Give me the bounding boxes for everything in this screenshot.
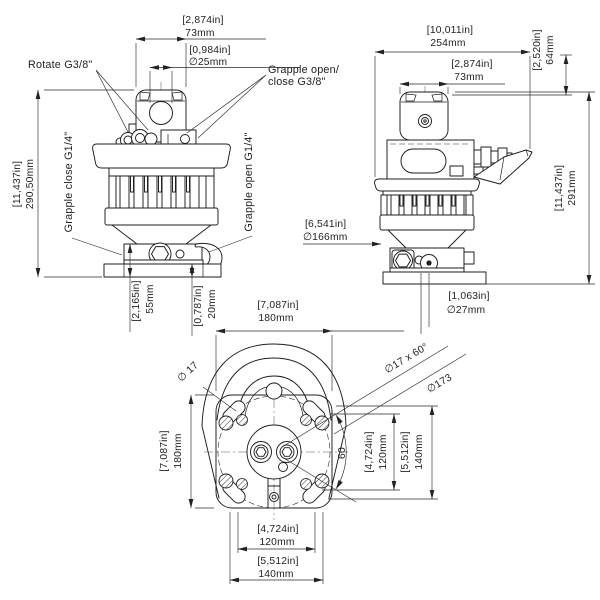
dim-h-inner-mm: 120mm — [259, 537, 294, 548]
side-lower-flange — [380, 215, 474, 230]
dim-v-inner-mm: 120mm — [378, 434, 389, 469]
front-base-plate — [104, 260, 221, 277]
dim-bottom-width-in: [7,087in] — [257, 300, 298, 311]
side-ribs — [381, 195, 473, 215]
grapple-open-close-leader — [187, 75, 266, 138]
front-cone — [112, 225, 211, 244]
side-view: [10,011in] 254mm [2,874in] 73mm [2,520in… — [303, 25, 595, 334]
dim-front-base-mm: 20mm — [207, 289, 218, 318]
dim-front-height-mm: 290,50mm — [25, 159, 36, 209]
front-top-flange — [93, 144, 231, 168]
label-grapple-open-close-1: Grapple open/ — [268, 64, 339, 76]
side-base-plate — [383, 268, 486, 284]
grapple-close-leader — [72, 238, 122, 255]
dim-slot-dia: ∅ 17 — [176, 360, 201, 385]
dim-front-pinhole-in: [0,984in] — [189, 45, 230, 56]
dim-bottom-width-mm: 180mm — [258, 313, 293, 324]
dim-front-width-in: [2,874in] — [182, 15, 223, 26]
dim-front-bracket-in: [2,165in] — [131, 280, 142, 321]
dim-bottom-height-mm: 180mm — [173, 433, 184, 468]
dim-v-outer-in: [5,512in] — [400, 431, 411, 472]
front-part-outline — [93, 82, 231, 277]
dim-side-housing-in: [2,874in] — [451, 59, 492, 70]
dim-side-handle-mm: 64mm — [545, 35, 556, 64]
dim-side-height-mm: 291mm — [567, 170, 578, 205]
dim-side-overall-mm: 254mm — [430, 38, 465, 49]
dim-h-inner-in: [4,724in] — [257, 524, 298, 535]
dim-side-overall-in: [10,011in] — [427, 25, 473, 36]
dim-side-height-in: [11,437in] — [554, 165, 565, 211]
dim-v-outer-mm: 140mm — [414, 434, 425, 469]
bottom-view: [7,087in] 180mm [7,087in] 180mm ∅ 17 ∅17… — [159, 300, 466, 584]
dim-side-hole-in: [1,063in] — [448, 291, 489, 302]
drawing-page: [2,874in] 73mm [0,984in] ∅25mm [11,437in… — [0, 0, 600, 600]
dim-side-flange-in: [6,541in] — [305, 219, 346, 230]
dim-front-height-in: [11,437in] — [12, 161, 23, 207]
center-boss — [247, 425, 301, 479]
label-grapple-open-port: Grapple open G1/4" — [243, 132, 255, 231]
side-part-outline — [375, 86, 532, 284]
dim-v-inner-in: [4,724in] — [364, 431, 375, 472]
dim-front-base-in: [0,787in] — [193, 285, 204, 326]
label-grapple-close-port: Grapple close G1/4" — [63, 132, 75, 233]
grapple-open-leader — [209, 236, 252, 252]
dim-front-width-mm: 73mm — [185, 28, 214, 39]
dim-side-housing-mm: 73mm — [454, 72, 483, 83]
side-cone — [388, 230, 466, 248]
dim-angle: 60 — [337, 447, 348, 459]
dim-side-handle-in: [2,520in] — [532, 29, 543, 70]
front-pin-hole — [150, 102, 173, 125]
technical-drawing-canvas: [2,874in] 73mm [0,984in] ∅25mm [11,437in… — [0, 0, 600, 600]
bottom-part-outline — [202, 344, 348, 520]
front-ribs — [109, 176, 214, 208]
dim-front-bracket-mm: 55mm — [145, 284, 156, 313]
label-rotate-port: Rotate G3/8" — [28, 59, 92, 71]
dim-side-flange-mm: ∅166mm — [303, 232, 348, 243]
dim-front-pinhole-mm: ∅25mm — [189, 57, 228, 68]
dim-h-outer-in: [5,512in] — [257, 556, 298, 567]
dim-side-hole-mm: ∅27mm — [447, 305, 486, 316]
top-index-hole — [266, 383, 282, 399]
front-lower-flange — [105, 208, 218, 225]
label-grapple-open-close-2: close G3/8" — [268, 76, 326, 88]
dim-bottom-height-in: [7,087in] — [159, 430, 170, 471]
dim-h-outer-mm: 140mm — [258, 569, 293, 580]
front-view: [2,874in] 73mm [0,984in] ∅25mm [11,437in… — [12, 15, 339, 336]
side-top-flange — [375, 179, 480, 191]
